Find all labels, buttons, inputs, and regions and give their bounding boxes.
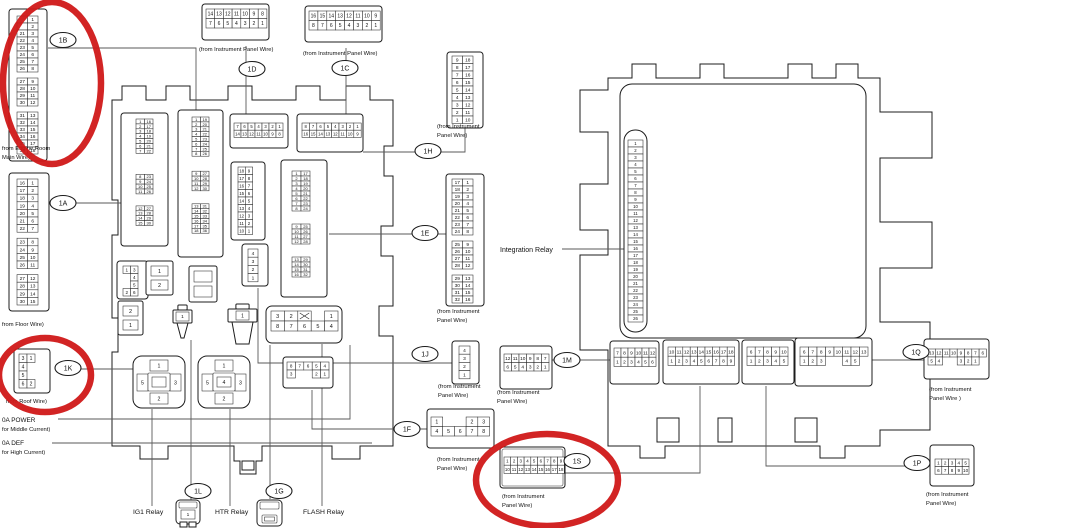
svg-text:17: 17 (465, 65, 471, 71)
svg-text:8: 8 (766, 349, 769, 355)
svg-text:10: 10 (669, 349, 675, 355)
svg-text:14: 14 (239, 198, 244, 203)
svg-text:9: 9 (31, 247, 34, 253)
svg-text:12: 12 (518, 467, 523, 472)
connector-small8: 87654321 (283, 357, 333, 388)
svg-text:8: 8 (456, 65, 459, 71)
svg-text:3: 3 (951, 460, 954, 465)
svg-text:5: 5 (315, 364, 318, 369)
svg-text:6: 6 (307, 364, 310, 369)
svg-text:18: 18 (239, 168, 244, 173)
label-1g: 1G (266, 484, 292, 499)
svg-text:26: 26 (147, 189, 152, 194)
connector-1q-ext: 13121110987654321 (924, 339, 989, 379)
svg-text:18: 18 (559, 467, 564, 472)
relay-block-lip-3 (795, 418, 817, 442)
connector-1s-ext: 123456789101112131415161718 (500, 447, 565, 488)
svg-text:8: 8 (31, 240, 34, 246)
svg-text:6: 6 (506, 364, 509, 370)
svg-text:10: 10 (636, 350, 642, 356)
svg-text:6: 6 (330, 23, 333, 29)
svg-text:12: 12 (194, 186, 199, 191)
svg-text:9: 9 (958, 468, 961, 473)
svg-text:7: 7 (209, 21, 212, 27)
svg-text:10: 10 (781, 349, 787, 355)
svg-text:14: 14 (328, 14, 334, 20)
svg-text:10: 10 (30, 86, 36, 92)
caption: (from Instrument (438, 384, 481, 390)
svg-text:1L: 1L (194, 489, 202, 496)
svg-text:1: 1 (31, 181, 34, 187)
svg-text:26: 26 (203, 151, 208, 156)
svg-text:14: 14 (633, 232, 638, 237)
svg-text:9: 9 (630, 350, 633, 356)
caption: (from Instrument Panel Wire) (303, 51, 377, 57)
svg-text:2: 2 (811, 359, 814, 365)
svg-text:1K: 1K (64, 366, 73, 373)
svg-text:16: 16 (713, 349, 719, 355)
caption: (from Instrument (437, 309, 480, 315)
label-1m: 1M (554, 353, 580, 368)
connector-int-4pin: 4321 (242, 244, 268, 286)
svg-text:1P: 1P (913, 461, 922, 468)
fuse-box-wiring-diagram: 1221322423524625726827928102911301231133… (0, 0, 1085, 528)
svg-text:22: 22 (633, 288, 638, 293)
svg-text:32: 32 (20, 120, 26, 126)
svg-text:6: 6 (303, 324, 306, 330)
svg-text:1: 1 (435, 420, 438, 426)
svg-text:23: 23 (633, 295, 638, 300)
svg-text:13: 13 (337, 14, 343, 20)
connector-blank2 (189, 266, 217, 302)
svg-text:1: 1 (241, 313, 244, 319)
svg-text:26: 26 (20, 263, 26, 269)
svg-text:15: 15 (30, 299, 36, 305)
svg-text:12: 12 (465, 263, 471, 269)
svg-text:6: 6 (133, 290, 136, 295)
svg-text:3: 3 (252, 259, 255, 265)
label-1p: 1P (904, 456, 930, 471)
connector-1c-ext: 16151413121110987654321 (305, 6, 382, 42)
svg-text:3: 3 (244, 21, 247, 27)
svg-text:20: 20 (633, 274, 638, 279)
svg-text:32: 32 (455, 297, 461, 303)
svg-text:14: 14 (318, 131, 323, 136)
svg-text:11: 11 (341, 131, 346, 136)
svg-text:1: 1 (187, 512, 190, 518)
connector-relay-icon-1g (257, 500, 282, 526)
svg-text:7: 7 (974, 351, 977, 356)
svg-text:1: 1 (223, 363, 226, 369)
svg-text:14: 14 (208, 12, 214, 18)
svg-text:7: 7 (811, 349, 814, 355)
svg-text:13: 13 (216, 12, 222, 18)
svg-text:6: 6 (937, 468, 940, 473)
svg-text:8: 8 (276, 324, 279, 330)
caption: Panel Wire) (926, 501, 956, 507)
svg-text:20: 20 (20, 211, 26, 217)
svg-text:4: 4 (463, 348, 466, 354)
svg-text:10: 10 (364, 14, 370, 20)
svg-text:16: 16 (545, 467, 550, 472)
svg-text:21: 21 (455, 208, 461, 214)
label-1a: 1A (50, 196, 76, 211)
svg-text:2: 2 (678, 359, 681, 365)
svg-text:9: 9 (730, 359, 733, 365)
svg-text:30: 30 (20, 299, 26, 305)
svg-text:13: 13 (691, 349, 697, 355)
label-1b: 1B (50, 33, 76, 48)
svg-text:12: 12 (684, 349, 690, 355)
svg-text:30: 30 (20, 100, 26, 106)
svg-text:1: 1 (158, 269, 161, 275)
svg-text:18: 18 (455, 187, 461, 193)
svg-text:6: 6 (651, 360, 654, 366)
svg-text:4: 4 (466, 201, 469, 207)
svg-text:26: 26 (20, 66, 26, 72)
svg-text:2: 2 (223, 396, 226, 402)
svg-text:2: 2 (463, 364, 466, 370)
svg-text:1: 1 (125, 267, 128, 272)
svg-text:3: 3 (456, 102, 459, 108)
diagram-canvas: 1221322423524625726827928102911301231133… (0, 0, 1085, 528)
svg-text:6: 6 (803, 349, 806, 355)
svg-text:25: 25 (20, 59, 26, 65)
svg-text:2: 2 (31, 188, 34, 194)
svg-text:2: 2 (252, 267, 255, 273)
svg-text:30: 30 (455, 283, 461, 289)
svg-text:16: 16 (303, 131, 308, 136)
svg-text:27: 27 (455, 256, 461, 262)
connector-m4: 67891011121312345 (795, 338, 872, 386)
svg-text:5: 5 (133, 282, 136, 287)
svg-text:5: 5 (456, 87, 459, 93)
svg-text:10: 10 (465, 249, 471, 255)
svg-text:4: 4 (637, 360, 640, 366)
svg-text:13: 13 (30, 284, 36, 290)
svg-text:9: 9 (374, 14, 377, 20)
svg-text:6: 6 (459, 429, 462, 435)
caption: (from Instrument (926, 492, 969, 498)
svg-text:13: 13 (929, 351, 935, 356)
svg-text:13: 13 (465, 276, 471, 282)
label-1j: 1J (412, 347, 438, 362)
svg-text:6: 6 (981, 351, 984, 356)
svg-text:14: 14 (30, 120, 36, 126)
connector-1e-ext: 1711821932042152262372482592610271128122… (446, 174, 484, 306)
connector-int1: 1162173184195206217228239241025112612271… (121, 113, 168, 246)
svg-text:5: 5 (854, 359, 857, 365)
svg-text:3: 3 (630, 360, 633, 366)
svg-text:1: 1 (324, 372, 327, 377)
connector-int3: 1172183194205216227238249251026112712281… (281, 160, 327, 297)
svg-text:11: 11 (256, 131, 261, 136)
svg-text:28: 28 (20, 86, 26, 92)
connector-1j-ext: 4321 (452, 341, 479, 384)
svg-text:1: 1 (30, 356, 33, 362)
svg-text:4: 4 (133, 275, 136, 280)
svg-text:11: 11 (465, 110, 470, 116)
relay-block-lip-2 (718, 418, 732, 442)
svg-text:10: 10 (239, 228, 244, 233)
svg-text:7: 7 (616, 350, 619, 356)
connector-1h-ext: 918817716615514413312211110 (447, 52, 483, 128)
svg-text:5: 5 (447, 429, 450, 435)
svg-text:8: 8 (290, 364, 293, 369)
svg-text:26: 26 (633, 316, 638, 321)
svg-text:4: 4 (348, 23, 351, 29)
svg-text:18: 18 (633, 260, 638, 265)
connector-int-21: 21 (118, 301, 143, 335)
svg-text:2: 2 (290, 314, 293, 320)
svg-text:6: 6 (750, 349, 753, 355)
svg-text:6: 6 (22, 382, 25, 388)
caption: for Middle Current) (2, 427, 50, 433)
svg-text:12: 12 (239, 213, 244, 218)
svg-text:15: 15 (538, 467, 543, 472)
svg-text:12: 12 (650, 350, 656, 356)
svg-text:9: 9 (466, 242, 469, 248)
svg-text:7: 7 (715, 359, 718, 365)
svg-text:1: 1 (31, 17, 34, 23)
svg-text:16: 16 (311, 14, 317, 20)
svg-text:12: 12 (633, 218, 638, 223)
svg-text:7: 7 (944, 468, 947, 473)
svg-text:7: 7 (466, 222, 469, 228)
connector-1d-ext: 1413121110987654321 (202, 4, 269, 40)
svg-text:8: 8 (482, 429, 485, 435)
svg-text:6: 6 (466, 215, 469, 221)
svg-text:16: 16 (30, 134, 36, 140)
svg-text:3: 3 (482, 420, 485, 426)
svg-text:1Q: 1Q (911, 350, 921, 357)
svg-text:22: 22 (147, 148, 152, 153)
svg-text:12: 12 (853, 349, 859, 355)
svg-text:11: 11 (633, 211, 638, 216)
svg-text:15: 15 (706, 349, 712, 355)
caption: Panel Wire) (502, 503, 532, 509)
svg-text:24: 24 (20, 247, 26, 253)
relay-block-inner-panel (620, 84, 866, 338)
svg-text:11: 11 (677, 349, 682, 355)
svg-text:4: 4 (938, 359, 941, 364)
svg-text:10: 10 (963, 468, 969, 473)
svg-text:20: 20 (455, 201, 461, 207)
svg-text:11: 11 (844, 349, 849, 355)
svg-text:5: 5 (206, 380, 209, 386)
svg-text:17: 17 (20, 188, 26, 194)
svg-text:9: 9 (828, 349, 831, 355)
svg-text:14: 14 (532, 467, 537, 472)
svg-text:13: 13 (525, 467, 530, 472)
connector-int-1d: 7654321141312111098 (230, 114, 288, 148)
svg-text:2: 2 (758, 359, 761, 365)
svg-text:21: 21 (20, 219, 26, 225)
svg-text:28: 28 (20, 284, 26, 290)
svg-text:1M: 1M (562, 358, 572, 365)
svg-text:11: 11 (643, 350, 648, 356)
svg-text:13: 13 (633, 225, 638, 230)
svg-text:8: 8 (536, 356, 539, 362)
svg-text:14: 14 (235, 131, 240, 136)
svg-text:5: 5 (783, 359, 786, 365)
svg-text:12: 12 (294, 239, 299, 244)
svg-text:1: 1 (456, 117, 459, 123)
caption: HTR Relay (215, 509, 249, 516)
svg-text:10: 10 (465, 117, 471, 123)
svg-text:12: 12 (225, 12, 231, 18)
caption: Integration Relay (500, 247, 553, 254)
svg-text:1: 1 (158, 363, 161, 369)
svg-text:3: 3 (174, 380, 177, 386)
svg-text:1: 1 (252, 275, 255, 281)
svg-text:2: 2 (536, 364, 539, 370)
caption: Panel Wire) (497, 399, 527, 405)
svg-text:2: 2 (944, 460, 947, 465)
svg-text:12: 12 (30, 276, 36, 282)
caption: for High Current) (2, 450, 45, 456)
caption: from Floor Wire) (2, 322, 44, 328)
connector-m2: 101112131415161718123456789 (663, 340, 739, 384)
svg-text:3: 3 (466, 194, 469, 200)
svg-text:2: 2 (466, 187, 469, 193)
svg-text:14: 14 (699, 349, 705, 355)
svg-text:23: 23 (20, 45, 26, 51)
svg-text:3: 3 (31, 196, 34, 202)
connector-1f-ext: 12345678 (427, 409, 494, 448)
svg-text:2: 2 (967, 359, 970, 364)
svg-text:5: 5 (339, 23, 342, 29)
svg-text:2: 2 (129, 309, 132, 315)
svg-text:4: 4 (693, 359, 696, 365)
caption: Panel Wire) (438, 393, 468, 399)
svg-text:1: 1 (803, 359, 806, 365)
svg-text:25: 25 (455, 242, 461, 248)
svg-text:3: 3 (766, 359, 769, 365)
svg-text:5: 5 (964, 460, 967, 465)
svg-text:4: 4 (958, 460, 961, 465)
connector-1p-ext: 12345678910 (930, 445, 974, 486)
svg-text:13: 13 (861, 349, 867, 355)
connector-int-k: 134526 (117, 261, 148, 299)
svg-text:24: 24 (20, 52, 26, 58)
svg-text:6: 6 (707, 359, 710, 365)
caption: (from Instrument Panel Wire) (199, 47, 273, 53)
caption: (from Instrument (437, 457, 480, 463)
svg-text:4: 4 (235, 21, 238, 27)
svg-text:31: 31 (20, 113, 26, 119)
svg-text:9: 9 (456, 57, 459, 63)
svg-text:3: 3 (31, 31, 34, 37)
svg-text:18: 18 (465, 57, 471, 63)
svg-text:1J: 1J (421, 352, 428, 359)
svg-text:7: 7 (290, 324, 293, 330)
svg-text:15: 15 (465, 80, 471, 86)
svg-text:29: 29 (455, 276, 461, 282)
svg-text:1: 1 (937, 460, 940, 465)
svg-text:2: 2 (125, 290, 128, 295)
label-1d: 1D (239, 62, 265, 77)
svg-text:15: 15 (320, 14, 326, 20)
label-1h: 1H (415, 144, 441, 159)
svg-text:13: 13 (326, 131, 331, 136)
svg-text:12: 12 (333, 131, 338, 136)
svg-text:14: 14 (465, 87, 471, 93)
svg-text:13: 13 (242, 131, 247, 136)
svg-text:15: 15 (239, 191, 244, 196)
svg-text:3: 3 (960, 359, 963, 364)
svg-text:10: 10 (30, 255, 36, 261)
svg-text:4: 4 (31, 203, 34, 209)
svg-text:15: 15 (138, 220, 143, 225)
svg-text:5: 5 (22, 373, 25, 379)
svg-text:4: 4 (456, 95, 459, 101)
svg-text:9: 9 (252, 12, 255, 18)
svg-text:5: 5 (930, 359, 933, 364)
svg-text:30: 30 (147, 220, 152, 225)
svg-text:18: 18 (194, 228, 199, 233)
svg-text:9: 9 (529, 356, 532, 362)
svg-text:8: 8 (967, 351, 970, 356)
svg-text:23: 23 (20, 240, 26, 246)
caption: (from Instrument (497, 390, 540, 396)
connector-relay-strip: 1234567891011121314151617181920212223242… (624, 130, 647, 332)
svg-text:15: 15 (465, 290, 471, 296)
svg-text:16: 16 (20, 181, 26, 187)
svg-text:18: 18 (20, 196, 26, 202)
svg-text:1E: 1E (421, 231, 430, 238)
svg-text:22: 22 (20, 226, 26, 232)
svg-text:11: 11 (944, 351, 949, 356)
caption: IG1 Relay (133, 509, 164, 516)
svg-text:11: 11 (30, 93, 35, 99)
svg-text:17: 17 (455, 180, 461, 186)
svg-text:11: 11 (355, 14, 360, 20)
svg-text:5: 5 (466, 208, 469, 214)
svg-text:10: 10 (263, 131, 268, 136)
svg-text:21: 21 (633, 281, 638, 286)
svg-text:3: 3 (685, 359, 688, 365)
svg-text:12: 12 (505, 356, 511, 362)
label-1q: 1Q (903, 345, 929, 360)
svg-text:1S: 1S (573, 459, 582, 466)
svg-text:31: 31 (455, 290, 461, 296)
svg-text:1H: 1H (424, 149, 433, 156)
svg-text:4: 4 (22, 365, 25, 371)
relay-block-lip-1 (657, 418, 679, 442)
main-box-foot-slot (242, 461, 254, 470)
svg-text:2: 2 (471, 420, 474, 426)
svg-text:10: 10 (633, 204, 638, 209)
svg-text:7: 7 (321, 23, 324, 29)
svg-text:1: 1 (374, 23, 377, 29)
svg-text:5: 5 (141, 380, 144, 386)
svg-text:4: 4 (774, 359, 777, 365)
connector-int-h: 189178167156145134123112101 (231, 162, 265, 240)
svg-text:27: 27 (20, 79, 26, 85)
svg-text:2: 2 (252, 21, 255, 27)
svg-text:13: 13 (30, 113, 36, 119)
svg-text:16: 16 (239, 183, 244, 188)
connector-wide8: 32187654 (266, 306, 342, 343)
svg-text:12: 12 (249, 131, 254, 136)
svg-text:8: 8 (722, 359, 725, 365)
svg-text:8: 8 (951, 468, 954, 473)
svg-text:13: 13 (239, 206, 244, 211)
caption: (from Instrument (502, 494, 545, 500)
svg-text:24: 24 (455, 229, 461, 235)
svg-text:3: 3 (290, 372, 293, 377)
